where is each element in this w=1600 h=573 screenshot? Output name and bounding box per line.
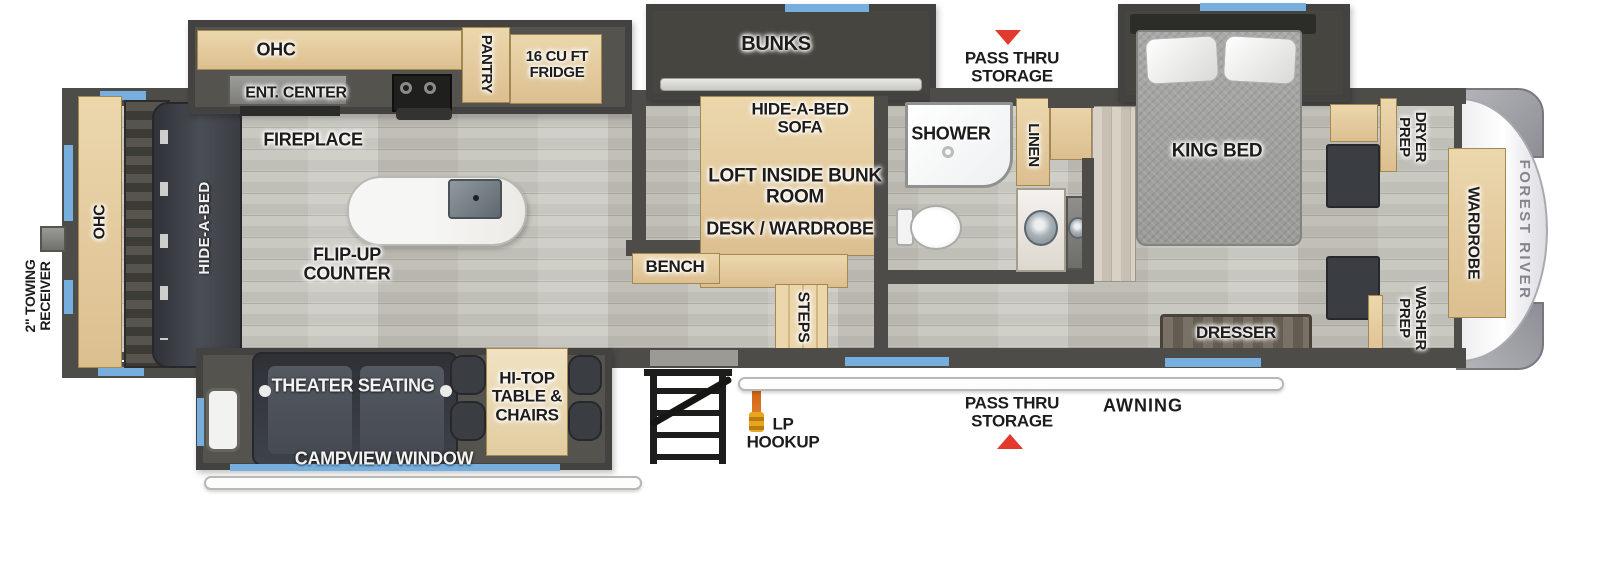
lp-hookup-label: LP HOOKUP [735,416,831,453]
desk-wardrobe-label: DESK / WARDROBE [706,219,874,238]
bedroom-wall-top [1048,96,1094,108]
washer-prep-label: WASHER PREP [1396,285,1428,351]
loft-label: LOFT INSIDE BUNK ROOM [705,166,885,207]
fireplace-label: FIREPLACE [263,130,362,149]
toilet-bowl [910,205,962,250]
bath-sink [1024,210,1058,246]
awning-label: AWNING [1103,396,1183,415]
bedside-cabinet-upper [1330,104,1378,142]
pantry-label: PANTRY [478,35,494,93]
island-sink-faucet [473,195,479,201]
fridge-label: 16 CU FT FRIDGE [515,49,599,81]
king-bed-label: KING BED [1172,142,1263,163]
steps-label: STEPS [794,292,811,343]
sofa-cushion-marks [160,130,168,340]
shower-drain [942,146,954,158]
dryer-prep-cabinet [1380,98,1397,172]
bedroom-steps [1092,106,1136,282]
shower-label: SHOWER [911,124,990,143]
bath-left-wall [874,96,888,350]
rear-window-left-2 [64,280,73,314]
cooktop-burner-1 [400,82,412,94]
ent-center-label: ENT. CENTER [245,84,347,101]
bunks-label: BUNKS [741,34,811,56]
linen-label: LINEN [1025,123,1041,167]
bunkroom-left-wall [632,90,646,242]
kitchen-ohc-label: OHC [256,40,295,59]
rear-awning-rail [204,476,642,490]
kitchen-ohc-cabinet [197,30,462,70]
bottom-window-1 [845,357,949,366]
bottom-window-2 [1165,358,1261,367]
rear-window-left-1 [64,145,73,221]
entry-steps-top-rail [644,369,732,376]
king-pillow-left [1145,35,1219,85]
rear-ohc-label: OHC [91,205,108,240]
king-window [1200,3,1306,11]
dresser-label: DRESSER [1196,324,1276,342]
top-wall-front [1342,88,1466,104]
hide-a-bed-sofa-label: HIDE-A-BED SOFA [734,101,866,138]
pass-thru-top-label: PASS THRU STORAGE [949,50,1075,87]
flip-up-counter-label: FLIP-UP COUNTER [282,246,412,285]
bunks-sill [660,78,922,91]
theater-cupholder-left [259,385,271,397]
dryer-prep-label: DRYER PREP [1396,107,1428,167]
king-pillow-right [1223,35,1297,85]
bunkroom-floor-lower [700,254,848,288]
bottom-wall [612,348,1466,368]
cooktop-burner-2 [424,82,436,94]
towing-receiver-label: 2" TOWING RECEIVER [23,237,53,355]
range-front [396,108,452,120]
bedroom-wall-vertical [1082,158,1094,284]
entry-door-opening [650,350,738,366]
brand-label: FOREST RIVER [1516,160,1532,301]
shower [905,102,1013,188]
theater-seating-label: THEATER SEATING [272,376,435,395]
nightstand-top [1326,144,1380,208]
theater-slide-window [206,388,240,452]
main-awning-rail [738,377,1284,391]
rear-window-bottom [98,367,144,376]
cooktop [392,74,452,112]
bunks-window [785,4,869,12]
rear-hide-a-bed-label: HIDE-A-BED [197,181,213,274]
pass-thru-bottom-arrow-icon [997,434,1023,449]
bench-label: BENCH [646,258,705,276]
pass-thru-top-arrow-icon [995,30,1021,45]
bath-bottom-wall [888,270,1094,284]
pass-thru-bottom-label: PASS THRU STORAGE [949,395,1075,432]
theater-window-strip [197,398,204,446]
hitop-label: HI-TOP TABLE & CHAIRS [480,369,574,424]
wardrobe-label: WARDROBE [1464,187,1481,280]
rv-floorplan: FOREST RIVER 2" TOWING RECEIVER OHC HIDE… [0,0,1600,573]
fireplace-unit [240,106,340,116]
campview-window-label: CAMPVIEW WINDOW [295,449,473,468]
